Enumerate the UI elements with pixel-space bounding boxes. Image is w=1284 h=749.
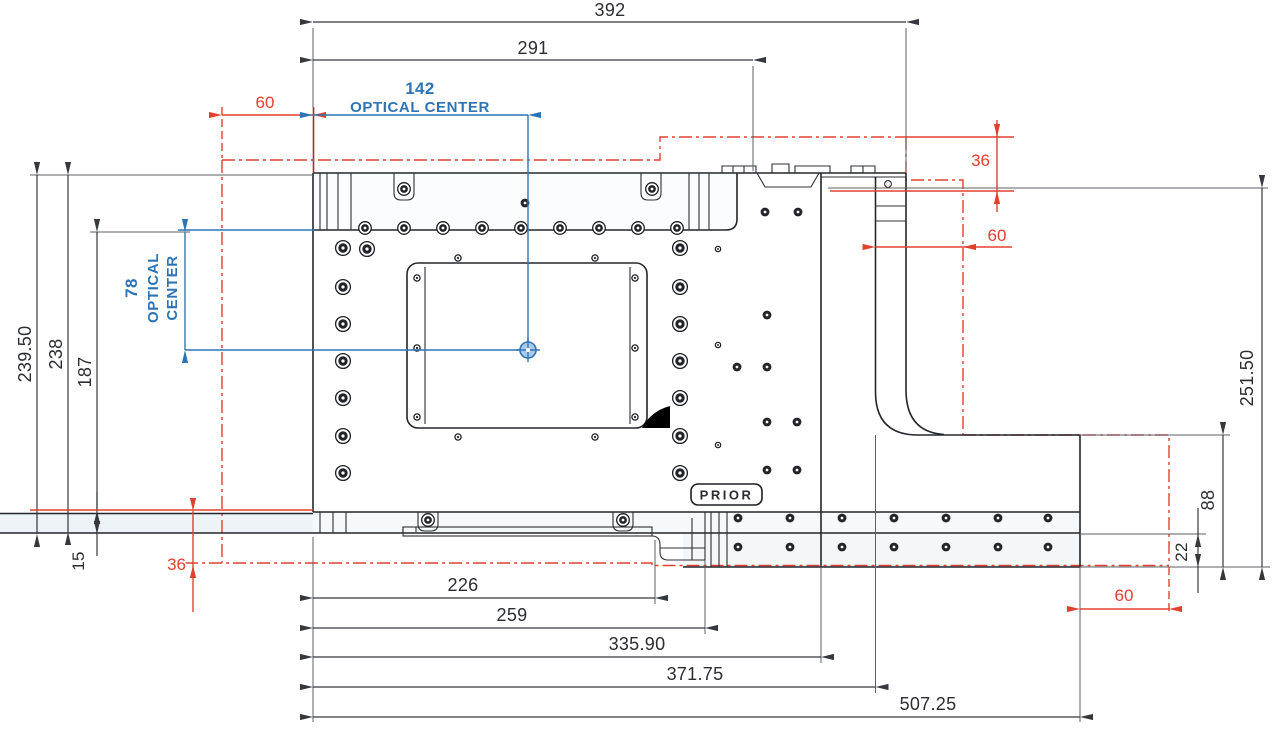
dim-left-aperture: 187 <box>75 232 97 511</box>
stage-drawing-svg: PRIOR <box>0 0 1284 749</box>
dim-top-inner: 291 <box>313 38 753 60</box>
dim-right-overall-value: 251.50 <box>1237 350 1257 407</box>
dim-top-overall: 392 <box>313 0 906 22</box>
dim-optical-y-label-line2: CENTER <box>164 255 181 320</box>
dim-travel-right-value: 60 <box>988 226 1007 245</box>
extension-lines <box>30 28 1270 722</box>
dim-bottom-3-value: 335.90 <box>609 634 666 654</box>
dim-optical-x-label: OPTICAL CENTER <box>350 99 490 116</box>
dim-left-inner: 238 <box>46 175 68 532</box>
dim-right-arm-depth-value: 88 <box>1198 490 1218 511</box>
brand-label: PRIOR <box>700 488 754 503</box>
dim-left-inner-value: 238 <box>46 339 66 370</box>
dim-top-overall-value: 392 <box>595 0 626 20</box>
dim-travel-top-left-value: 60 <box>256 93 275 112</box>
dim-top-inner-value: 291 <box>518 38 549 58</box>
dim-left-aperture-value: 187 <box>75 357 95 388</box>
dim-bottom-5: 507.25 <box>313 694 1080 717</box>
dim-travel-bottom-right: 60 <box>1080 567 1169 614</box>
dim-left-plate-step-value: 15 <box>69 551 88 571</box>
dim-bottom-4: 371.75 <box>313 664 876 687</box>
screws-right-column <box>673 241 721 481</box>
optical-center-crosshair <box>516 338 540 362</box>
dim-bottom-4-value: 371.75 <box>667 664 724 684</box>
dim-optical-y-value: 78 <box>122 278 141 298</box>
dim-right-arm-depth: 88 <box>1198 435 1223 567</box>
dim-left-outer-value: 239.50 <box>15 326 35 383</box>
dim-bottom-1: 226 <box>313 575 655 598</box>
dim-optical-y-label-line1: OPTICAL <box>145 253 162 323</box>
dim-travel-top-right-value: 36 <box>971 151 990 170</box>
dim-bottom-5-value: 507.25 <box>900 694 957 714</box>
dim-bottom-2-value: 259 <box>497 605 528 625</box>
screws-left-column <box>336 241 375 481</box>
screws-right-face <box>733 208 803 475</box>
brand-badge: PRIOR <box>691 484 762 505</box>
dim-bottom-2: 259 <box>313 605 705 628</box>
dim-right-overall: 251.50 <box>1237 188 1262 567</box>
dim-travel-top-left: 60 <box>222 93 314 173</box>
engineering-drawing-canvas: PRIOR <box>0 0 1284 749</box>
dim-right-arm-step: 22 <box>1172 508 1198 593</box>
dim-travel-bottom-left-value: 36 <box>167 555 186 574</box>
dim-optical-y: 78 OPTICAL CENTER <box>122 230 540 362</box>
dim-left-outer: 239.50 <box>15 175 37 534</box>
dim-travel-right: 60 <box>876 226 1013 247</box>
dim-right-arm-step-value: 22 <box>1172 542 1191 562</box>
dim-bottom-1-value: 226 <box>448 575 479 595</box>
dim-bottom-3: 335.90 <box>313 634 821 657</box>
dim-travel-bottom-right-value: 60 <box>1115 586 1134 605</box>
dim-optical-x-value: 142 <box>405 79 435 98</box>
